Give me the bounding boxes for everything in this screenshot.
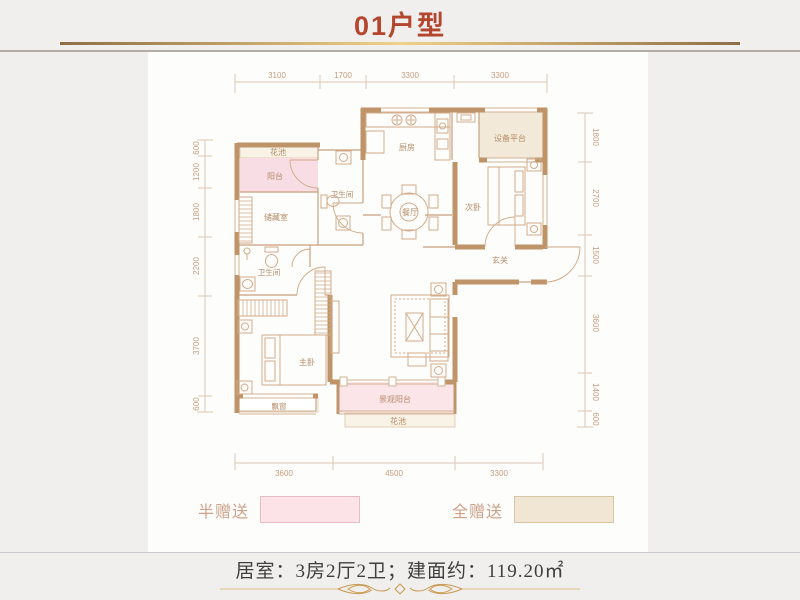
flourish-ornament <box>220 580 580 598</box>
room-label-bath-upper: 卫生间 <box>331 189 354 199</box>
floor-plan-drawing: 3100 1700 3300 3300 3600 4500 3300 600 1… <box>185 55 615 485</box>
svg-text:3300: 3300 <box>490 469 508 478</box>
svg-text:1700: 1700 <box>334 71 352 80</box>
room-label-flower-bottom: 花池 <box>390 416 406 426</box>
svg-text:3600: 3600 <box>591 314 600 332</box>
room-label-kitchen: 厨房 <box>399 142 415 152</box>
room-label-view-balcony: 景观阳台 <box>379 394 411 404</box>
svg-text:4500: 4500 <box>385 469 403 478</box>
svg-text:1500: 1500 <box>591 246 600 264</box>
room-label-master: 主卧 <box>299 357 315 367</box>
room-label-flower-top: 花池 <box>270 147 286 157</box>
legend-half-gift-label: 半赠送 <box>198 498 249 522</box>
svg-text:1400: 1400 <box>591 383 600 401</box>
room-label-foyer: 玄关 <box>492 255 508 265</box>
svg-text:3300: 3300 <box>491 71 509 80</box>
svg-text:600: 600 <box>591 412 600 426</box>
page-title: 01户型 <box>0 4 800 43</box>
room-label-bay-window: 飘窗 <box>272 401 287 411</box>
room-label-equipment: 设备平台 <box>494 133 526 143</box>
svg-text:1200: 1200 <box>192 163 201 181</box>
legend-half-gift: 半赠送 <box>198 496 360 523</box>
unit-summary: 居室：3房2厅2卫；建面约：119.20㎡ <box>0 556 800 583</box>
svg-text:600: 600 <box>192 141 201 155</box>
svg-text:2700: 2700 <box>591 189 600 207</box>
room-label-bedroom2: 次卧 <box>465 202 481 212</box>
svg-text:2200: 2200 <box>192 257 201 275</box>
room-label-bath-lower: 卫生间 <box>258 267 281 277</box>
svg-text:3300: 3300 <box>401 71 419 80</box>
legend-full-gift-swatch <box>514 496 614 523</box>
legend-half-gift-swatch <box>260 496 360 523</box>
floor-plan-card: 01户型 <box>0 0 800 600</box>
svg-text:3100: 3100 <box>268 71 286 80</box>
svg-text:600: 600 <box>192 397 201 411</box>
svg-text:3700: 3700 <box>192 337 201 355</box>
svg-text:1800: 1800 <box>591 128 600 146</box>
room-label-dining: 餐厅 <box>402 208 418 217</box>
room-label-storage: 储藏室 <box>264 212 288 222</box>
room-label-balcony: 阳台 <box>267 171 283 181</box>
gold-divider <box>60 42 740 45</box>
svg-text:3600: 3600 <box>275 469 293 478</box>
legend-full-gift: 全赠送 <box>452 496 614 523</box>
legend-full-gift-label: 全赠送 <box>452 498 503 522</box>
svg-text:1800: 1800 <box>192 203 201 221</box>
